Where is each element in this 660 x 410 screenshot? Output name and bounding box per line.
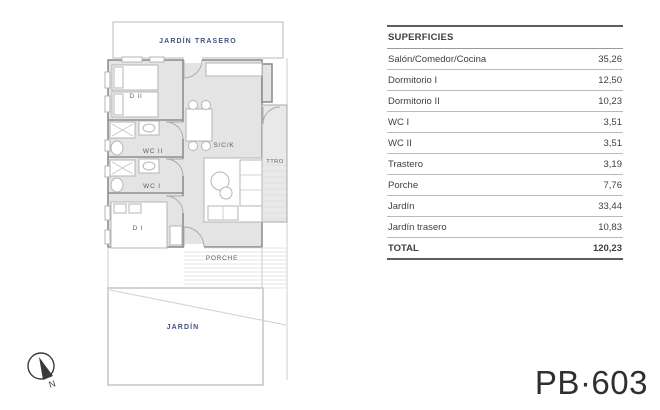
surface-row-label: Dormitorio I	[388, 75, 437, 86]
surface-row-label: Porche	[388, 180, 418, 191]
surface-row-value: 33,44	[598, 201, 622, 212]
window	[122, 57, 142, 62]
dining-table	[186, 109, 212, 141]
window	[105, 230, 110, 244]
window	[105, 166, 110, 177]
kitchen-counter-top	[206, 63, 262, 76]
bedroom2-label: D II	[129, 93, 142, 100]
total-value: 120,23	[593, 243, 622, 254]
garden-area	[108, 288, 263, 385]
compass-north-label: N	[48, 378, 57, 390]
window	[105, 96, 110, 112]
coffee-table	[220, 187, 232, 199]
window	[150, 57, 164, 62]
surface-row-value: 12,50	[598, 75, 622, 86]
bedroom1-label: D I	[133, 225, 144, 232]
surface-row: WC II 3,51	[387, 133, 623, 154]
window	[105, 206, 110, 220]
chair	[189, 101, 198, 110]
window	[105, 140, 110, 151]
sink-bowl	[143, 162, 155, 170]
surface-row: Porche 7,76	[387, 175, 623, 196]
surface-row-value: 10,23	[598, 96, 622, 107]
surface-row: Dormitorio II 10,23	[387, 91, 623, 112]
wc2-label: WC II	[143, 148, 163, 155]
toilet	[111, 178, 123, 192]
window	[105, 72, 110, 88]
total-label: TOTAL	[388, 243, 419, 254]
pillow	[114, 67, 123, 88]
rear-garden-label: JARDÍN TRASERO	[159, 36, 237, 45]
porch-label: PORCHE	[206, 255, 239, 262]
surfaces-table-body: Salón/Comedor/Cocina 35,26 Dormitorio I …	[387, 49, 623, 238]
surfaces-table: SUPERFICIES Salón/Comedor/Cocina 35,26 D…	[387, 25, 623, 260]
surface-row: Trastero 3,19	[387, 154, 623, 175]
chair	[202, 101, 211, 110]
surface-row: WC I 3,51	[387, 112, 623, 133]
toilet	[111, 141, 123, 155]
garden-label: JARDÍN	[167, 322, 200, 331]
house-floor-extension	[262, 64, 272, 102]
surface-row-value: 3,51	[604, 117, 623, 128]
surfaces-total-row: TOTAL 120,23	[387, 238, 623, 260]
page: JARDÍN TRASERO D II WC II WC I D I S/C/K…	[0, 0, 660, 410]
surfaces-header-label: SUPERFICIES	[388, 32, 454, 43]
surface-row-value: 3,51	[604, 138, 623, 149]
chair	[189, 142, 198, 151]
surface-row-label: Salón/Comedor/Cocina	[388, 54, 486, 65]
living-label: S/C/K	[214, 142, 235, 149]
pillow	[114, 204, 126, 213]
surface-row-label: Trastero	[388, 159, 423, 170]
sofa	[240, 160, 262, 206]
floor-plan: JARDÍN TRASERO D II WC II WC I D I S/C/K…	[0, 0, 345, 410]
entry-door-opening	[184, 244, 204, 250]
surface-row: Jardín 33,44	[387, 196, 623, 217]
pillow	[114, 94, 123, 115]
chair	[202, 142, 211, 151]
surface-row-value: 10,83	[598, 222, 622, 233]
unit-code: PB·603	[535, 364, 648, 402]
surface-row-label: Jardín trasero	[388, 222, 447, 233]
surface-row-value: 3,19	[604, 159, 623, 170]
surface-row-label: Jardín	[388, 201, 414, 212]
wc1-label: WC I	[143, 183, 161, 190]
surface-row-value: 35,26	[598, 54, 622, 65]
pillow	[129, 204, 141, 213]
surfaces-table-header: SUPERFICIES	[387, 27, 623, 49]
compass: N	[28, 353, 57, 390]
surface-row-label: WC II	[388, 138, 412, 149]
storage-label: TTRO	[266, 159, 283, 165]
surface-row-value: 7,76	[604, 180, 623, 191]
surface-row-label: Dormitorio II	[388, 96, 440, 107]
surface-row-label: WC I	[388, 117, 409, 128]
porch-decking	[184, 248, 287, 288]
sink-bowl	[143, 124, 155, 132]
back-door-opening	[184, 57, 202, 63]
surface-row: Salón/Comedor/Cocina 35,26	[387, 49, 623, 70]
wardrobe	[170, 226, 182, 245]
surface-row: Dormitorio I 12,50	[387, 70, 623, 91]
surface-row: Jardín trasero 10,83	[387, 217, 623, 238]
